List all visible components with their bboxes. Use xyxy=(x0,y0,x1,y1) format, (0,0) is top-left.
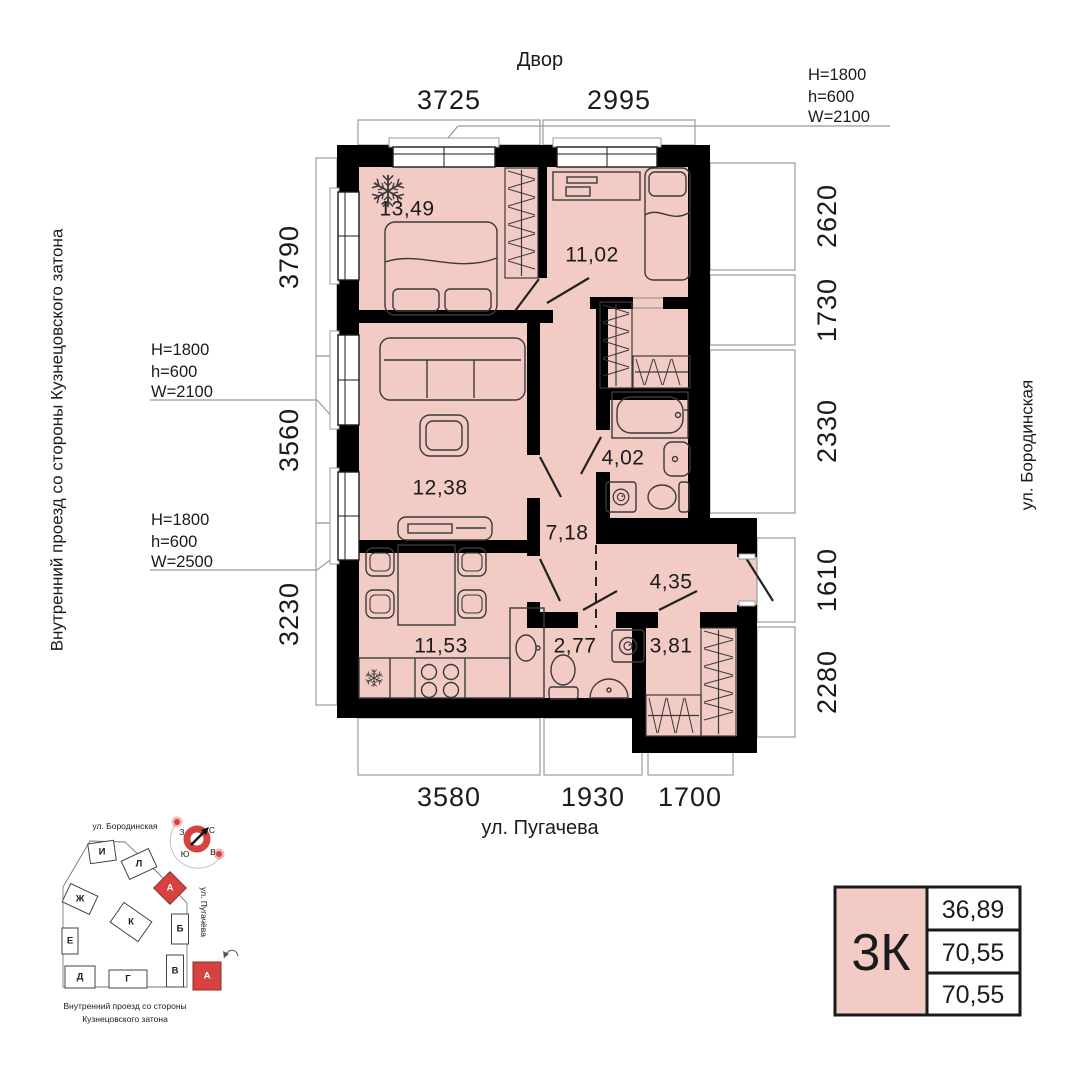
street-top: Двор xyxy=(517,49,563,71)
dim-right-4: 1610 xyxy=(812,548,842,612)
room-area-kitchen: 11,53 xyxy=(414,635,468,658)
card-value-3: 70,55 xyxy=(942,981,1005,1009)
building-label: Л xyxy=(136,859,143,870)
spec-line: W=2100 xyxy=(808,108,870,126)
dim-right-3: 2330 xyxy=(812,399,842,463)
dim-right-1: 2620 xyxy=(812,184,842,248)
compass-east: В xyxy=(210,847,216,857)
site-street-top: ул. Бородинская xyxy=(92,821,158,831)
site-buildings: И Л А Ж К Б Е В Д Г xyxy=(62,840,189,988)
site-caption-line2: Кузнецовского затона xyxy=(82,1014,168,1024)
building-label: Б xyxy=(177,924,184,935)
building-label: К xyxy=(128,917,134,928)
street-right: ул. Бородинская xyxy=(1018,380,1037,510)
spec-line: h=600 xyxy=(151,363,197,381)
dim-bottom-2: 1930 xyxy=(561,782,625,812)
room-area-bedroom1: 13,49 xyxy=(379,198,434,221)
building-label: Д xyxy=(77,972,84,983)
dim-right-5: 2280 xyxy=(812,650,842,714)
window-spec-left-lower: H=1800 h=600 W=2500 xyxy=(151,511,213,571)
window-icon-left-3 xyxy=(330,468,359,564)
card-value-2: 70,55 xyxy=(942,939,1005,967)
room-area-bathroom: 4,02 xyxy=(602,447,645,470)
dim-bottom-1: 3580 xyxy=(417,782,481,812)
spec-line: H=1800 xyxy=(808,66,866,84)
room-area-living: 12,38 xyxy=(412,477,467,500)
building-label: Г xyxy=(125,974,131,985)
building-label: В xyxy=(172,966,179,977)
site-street-right: ул. Пугачёва xyxy=(199,887,209,937)
dim-left-1: 3790 xyxy=(274,225,304,289)
dim-top-2: 2995 xyxy=(587,85,651,115)
dim-left-3: 3230 xyxy=(274,582,304,646)
room-area-wc: 2,77 xyxy=(554,635,597,658)
floorplan-canvas: 13,49 11,02 12,38 4,02 7,18 4,35 11,53 2… xyxy=(0,0,1080,1080)
building-label: И xyxy=(99,847,106,858)
info-card: 3К 36,89 70,55 70,55 xyxy=(835,887,1020,1015)
compass-south: Ю xyxy=(181,849,190,859)
dim-left-2: 3560 xyxy=(274,408,304,472)
compass-north: С xyxy=(209,825,215,835)
dim-bottom-3: 1700 xyxy=(658,782,722,812)
building-label: Ж xyxy=(75,894,85,905)
window-icon-left-2 xyxy=(330,331,359,429)
window-icon-top-2 xyxy=(553,138,661,167)
spec-line: W=2100 xyxy=(151,383,213,401)
site-plan: ул. Бородинская ул. Пугачёва З С Ю В И Л… xyxy=(62,817,238,1025)
card-type-label: 3К xyxy=(851,924,910,982)
room-area-wardrobe: 3,81 xyxy=(650,635,693,658)
room-area-hall: 7,18 xyxy=(546,522,589,545)
building-label-highlighted: А xyxy=(167,883,174,894)
building-label: Е xyxy=(67,936,73,947)
spec-line: W=2500 xyxy=(151,553,213,571)
card-value-1: 36,89 xyxy=(942,896,1005,924)
window-spec-top-right: H=1800 h=600 W=2100 xyxy=(808,66,870,126)
room-area-entry: 4,35 xyxy=(650,571,693,594)
site-legend: А xyxy=(193,950,238,990)
spec-line: H=1800 xyxy=(151,511,209,529)
street-left: Внутренний проезд со стороны Кузнецовско… xyxy=(48,228,67,651)
compass-icon: З С Ю В xyxy=(170,817,224,869)
legend-building-label: А xyxy=(204,971,211,982)
spec-line: h=600 xyxy=(808,88,854,106)
site-caption-line1: Внутренний проезд со стороны xyxy=(63,1001,186,1011)
spec-line: h=600 xyxy=(151,533,197,551)
window-spec-left-upper: H=1800 h=600 W=2100 xyxy=(151,341,213,401)
window-icon-left-1 xyxy=(330,188,359,284)
dim-right-2: 1730 xyxy=(812,278,842,342)
floorplan-page: 13,49 11,02 12,38 4,02 7,18 4,35 11,53 2… xyxy=(0,0,1080,1080)
compass-west: З xyxy=(179,827,184,837)
street-bottom: ул. Пугачева xyxy=(481,817,599,839)
dim-top-1: 3725 xyxy=(417,85,481,115)
spec-line: H=1800 xyxy=(151,341,209,359)
room-area-bedroom2: 11,02 xyxy=(565,244,619,267)
window-icon-top-1 xyxy=(389,138,499,167)
